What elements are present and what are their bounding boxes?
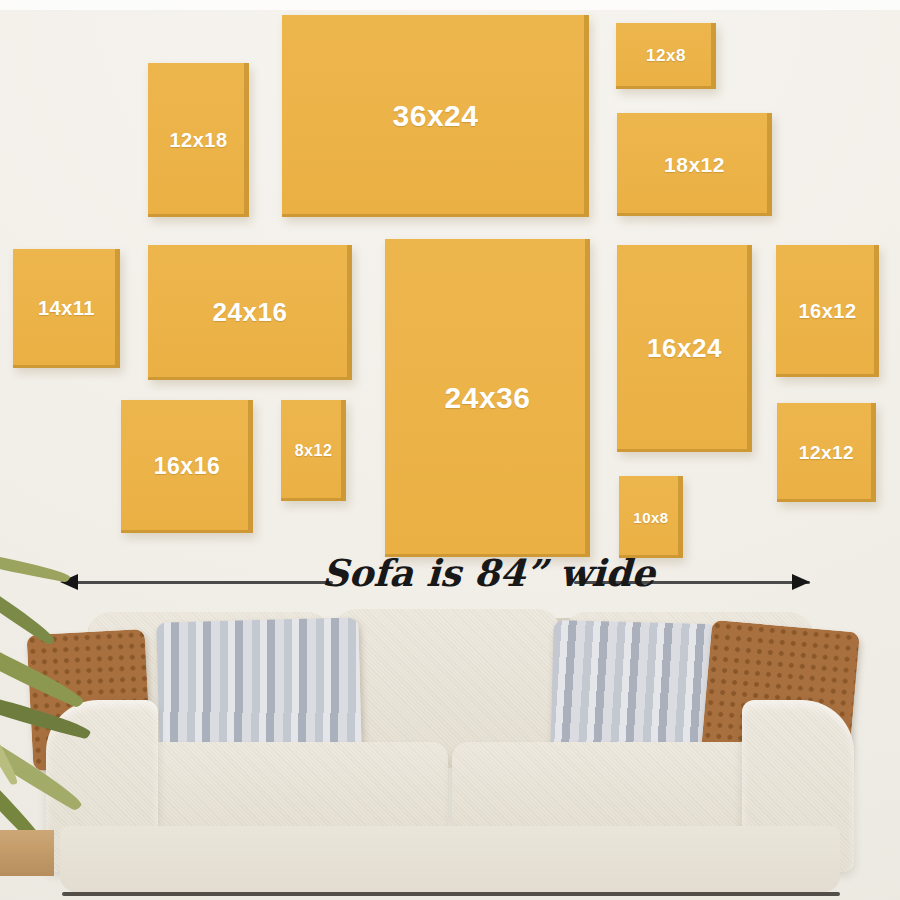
canvas-frame-24x16: 24x16 — [148, 245, 352, 380]
canvas-frame-10x8: 10x8 — [619, 476, 683, 558]
canvas-frame-18x12: 18x12 — [617, 113, 772, 216]
canvas-frame-14x11: 14x11 — [13, 249, 120, 368]
canvas-size-label: 24x36 — [445, 381, 531, 415]
arrowhead-right-icon — [792, 574, 810, 590]
sofa-floor-shadow — [62, 892, 840, 896]
sofa-base-skirt — [60, 826, 840, 892]
canvas-size-label: 10x8 — [633, 509, 668, 526]
pillow-gray-left — [156, 617, 361, 756]
canvas-size-label: 12x12 — [799, 442, 854, 464]
sofa-width-label: Sofa is 84” wide — [321, 551, 589, 595]
canvas-frame-12x12: 12x12 — [777, 403, 876, 502]
canvas-frame-24x36: 24x36 — [385, 239, 590, 557]
canvas-frame-16x12: 16x12 — [776, 245, 879, 377]
canvas-frame-12x18: 12x18 — [148, 63, 249, 217]
canvas-size-label: 14x11 — [38, 297, 95, 320]
canvas-frame-16x16: 16x16 — [121, 400, 253, 533]
dimension-line-left — [70, 581, 333, 584]
canvas-size-label: 16x24 — [647, 333, 722, 364]
canvas-frame-12x8: 12x8 — [616, 23, 716, 89]
canvas-size-label: 16x16 — [154, 453, 220, 480]
plant-leaf — [0, 573, 59, 646]
canvas-size-label: 36x24 — [393, 99, 479, 133]
canvas-size-label: 12x8 — [646, 46, 686, 66]
wall-top-highlight — [0, 0, 900, 10]
wall-size-guide-scene: 12x18 36x24 12x8 18x12 14x11 24x16 24x36… — [0, 0, 900, 900]
canvas-size-label: 12x18 — [169, 129, 227, 152]
canvas-frame-8x12: 8x12 — [281, 400, 346, 501]
canvas-frame-36x24: 36x24 — [282, 15, 589, 217]
pillow-gray-right — [550, 620, 716, 757]
canvas-size-label: 18x12 — [664, 153, 725, 177]
floor-patch — [0, 830, 54, 876]
canvas-size-label: 16x12 — [798, 300, 856, 323]
plant-leaf — [0, 548, 71, 583]
canvas-size-label: 8x12 — [295, 442, 333, 460]
canvas-size-label: 24x16 — [213, 297, 288, 328]
canvas-frame-16x24: 16x24 — [617, 245, 752, 452]
